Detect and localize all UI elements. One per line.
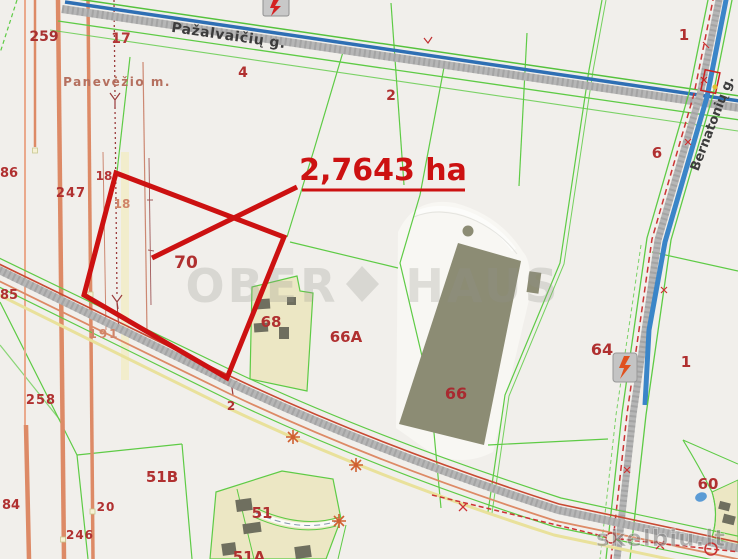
parcel-label-2: 2: [386, 88, 396, 104]
cadastral-map[interactable]: OBER HAUS 2,7643 ha Pažalvaičių g. Berna…: [0, 0, 738, 559]
map-canvas[interactable]: OBER HAUS 2,7643 ha Pažalvaičių g. Berna…: [0, 0, 738, 559]
municipality-label: Panevėžio m.: [63, 75, 171, 89]
parcel-label-20: 20: [97, 500, 116, 514]
transformer-icon: [613, 353, 637, 382]
node-dot: [713, 85, 718, 90]
parcel-label-6: 6: [652, 144, 662, 162]
silo: [463, 226, 474, 237]
parcel-label-68: 68: [261, 313, 282, 331]
star-marker: [332, 514, 346, 528]
parcel-label-51: 51: [252, 504, 273, 522]
star-marker: [349, 458, 363, 472]
parcel-label-84: 84: [2, 498, 20, 513]
parcel-label-17: 17: [111, 31, 130, 47]
parcel-label-70: 70: [174, 253, 198, 273]
parcel-label-246: 246: [66, 528, 94, 542]
star-marker: [286, 430, 300, 444]
parcel-label-86: 86: [0, 166, 18, 181]
watermark-text-right: HAUS: [405, 259, 560, 313]
parcel-label-258: 258: [26, 393, 56, 408]
parcel-label-259: 259: [29, 29, 58, 45]
parcel-label-85: 85: [0, 288, 18, 303]
parcel-label-51b: 51B: [146, 468, 178, 486]
parcel-label-247: 247: [56, 186, 86, 201]
parcel-label-66: 66: [445, 384, 467, 403]
zone-strip: [121, 152, 129, 380]
parcel-label-66a: 66A: [330, 328, 363, 346]
parcel-label-191: 191: [88, 327, 119, 341]
site-watermark: skelbiu.lt: [596, 526, 726, 552]
parcel-label-18b: 18: [114, 197, 131, 211]
parcel-label-60: 60: [698, 475, 719, 493]
parcel-label-1-mid: 1: [681, 353, 691, 371]
parcel-label-2-road: 2: [227, 399, 235, 413]
parcel-label-1-top: 1: [679, 26, 689, 44]
area-label: 2,7643 ha: [299, 153, 467, 188]
transformer-icon: [263, 0, 289, 16]
parcel-label-64: 64: [591, 340, 613, 359]
parcel-label-51a: 51A: [233, 548, 266, 559]
parcel-label-4: 4: [238, 65, 248, 81]
parcel-label-18a: 18: [96, 169, 113, 183]
